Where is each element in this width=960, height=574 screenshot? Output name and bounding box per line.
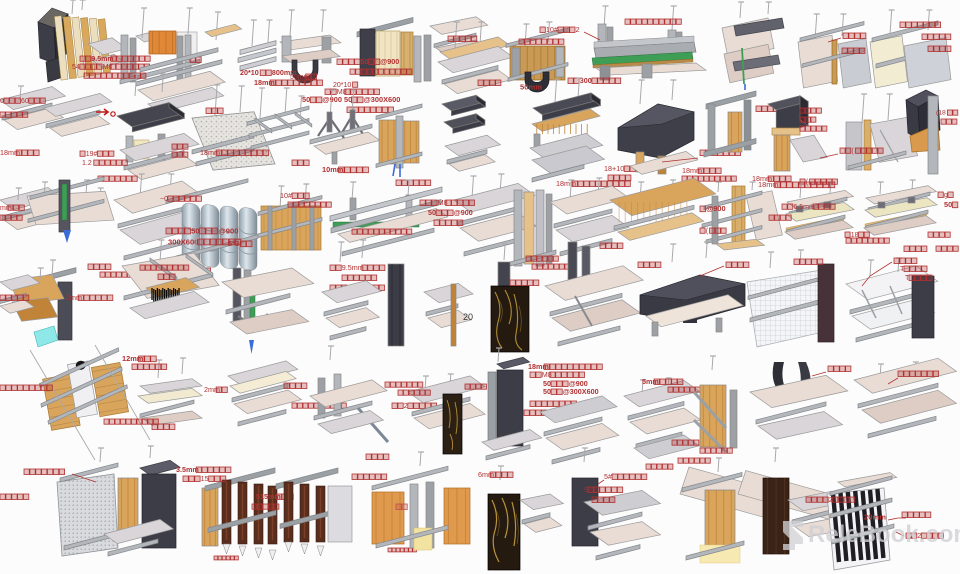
svg-text:300X600: 300X600 bbox=[168, 237, 198, 246]
svg-text:2: 2 bbox=[829, 497, 833, 504]
svg-text:@900: @900 bbox=[380, 57, 399, 66]
svg-text:ReleBook.com: ReleBook.com bbox=[808, 521, 960, 548]
svg-text:19#: 19# bbox=[86, 151, 98, 158]
svg-text:@900: @900 bbox=[706, 204, 726, 213]
svg-text:@900 50: @900 50 bbox=[322, 95, 352, 104]
svg-text:10#: 10# bbox=[546, 25, 558, 34]
svg-text:@300X600: @300X600 bbox=[364, 95, 401, 104]
svg-text:2: 2 bbox=[404, 401, 408, 410]
svg-text:50: 50 bbox=[428, 208, 436, 217]
svg-text:(18: (18 bbox=[936, 110, 946, 117]
svg-text:6.5mm: 6.5mm bbox=[793, 204, 815, 211]
svg-text:5*3: 5*3 bbox=[228, 239, 239, 248]
svg-text:9.5mm: 9.5mm bbox=[342, 263, 364, 272]
svg-text:300: 300 bbox=[580, 76, 592, 85]
svg-text:20: 20 bbox=[463, 312, 473, 322]
svg-text:3.5mm: 3.5mm bbox=[176, 465, 199, 474]
svg-text:15: 15 bbox=[201, 474, 209, 483]
svg-text:18+10: 18+10 bbox=[604, 164, 624, 173]
svg-text:60: 60 bbox=[21, 98, 29, 105]
svg-text:@900: @900 bbox=[454, 208, 473, 217]
svg-text:50: 50 bbox=[361, 57, 369, 66]
svg-text:@300X600: @300X600 bbox=[563, 387, 599, 396]
svg-text:50: 50 bbox=[191, 226, 199, 235]
svg-text:9.5mm: 9.5mm bbox=[91, 56, 113, 63]
svg-text:@900: @900 bbox=[218, 226, 238, 235]
svg-text:2: 2 bbox=[576, 25, 580, 34]
svg-text:~0: ~0 bbox=[160, 196, 168, 203]
svg-text:0: 0 bbox=[0, 98, 4, 105]
svg-text:50: 50 bbox=[944, 200, 952, 209]
svg-text:54: 54 bbox=[72, 64, 80, 71]
svg-text:5#: 5# bbox=[604, 472, 612, 481]
svg-text:1.2: 1.2 bbox=[82, 160, 92, 167]
svg-text:50: 50 bbox=[543, 387, 551, 396]
svg-text:20*10: 20*10 bbox=[240, 68, 259, 77]
svg-text:10#: 10# bbox=[280, 191, 292, 200]
svg-text:50mm: 50mm bbox=[520, 82, 542, 91]
svg-text:g: g bbox=[944, 190, 948, 199]
